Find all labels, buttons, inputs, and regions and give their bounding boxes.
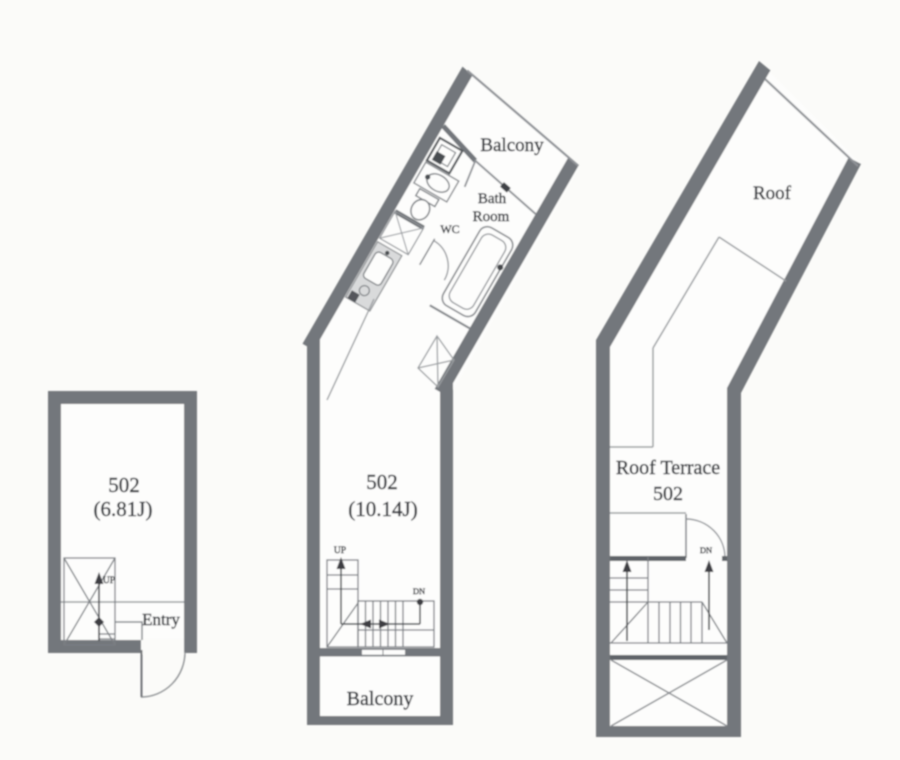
- svg-text:Bath: Bath: [478, 191, 507, 207]
- svg-text:Balcony: Balcony: [347, 688, 414, 710]
- svg-text:Balcony: Balcony: [480, 135, 544, 156]
- svg-text:502: 502: [653, 483, 683, 505]
- svg-text:Room: Room: [473, 209, 510, 225]
- svg-text:Roof Terrace: Roof Terrace: [616, 457, 720, 479]
- svg-text:WC: WC: [440, 222, 459, 236]
- svg-text:UP: UP: [103, 576, 115, 586]
- svg-text:Entry: Entry: [142, 610, 180, 629]
- svg-text:DN: DN: [413, 586, 425, 596]
- svg-text:(6.81J): (6.81J): [94, 497, 153, 521]
- svg-text:Roof: Roof: [753, 183, 792, 204]
- svg-text:(10.14J): (10.14J): [348, 497, 417, 521]
- svg-text:502: 502: [366, 470, 398, 494]
- svg-text:DN: DN: [700, 545, 712, 555]
- svg-text:502: 502: [108, 473, 140, 497]
- svg-text:UP: UP: [334, 546, 346, 556]
